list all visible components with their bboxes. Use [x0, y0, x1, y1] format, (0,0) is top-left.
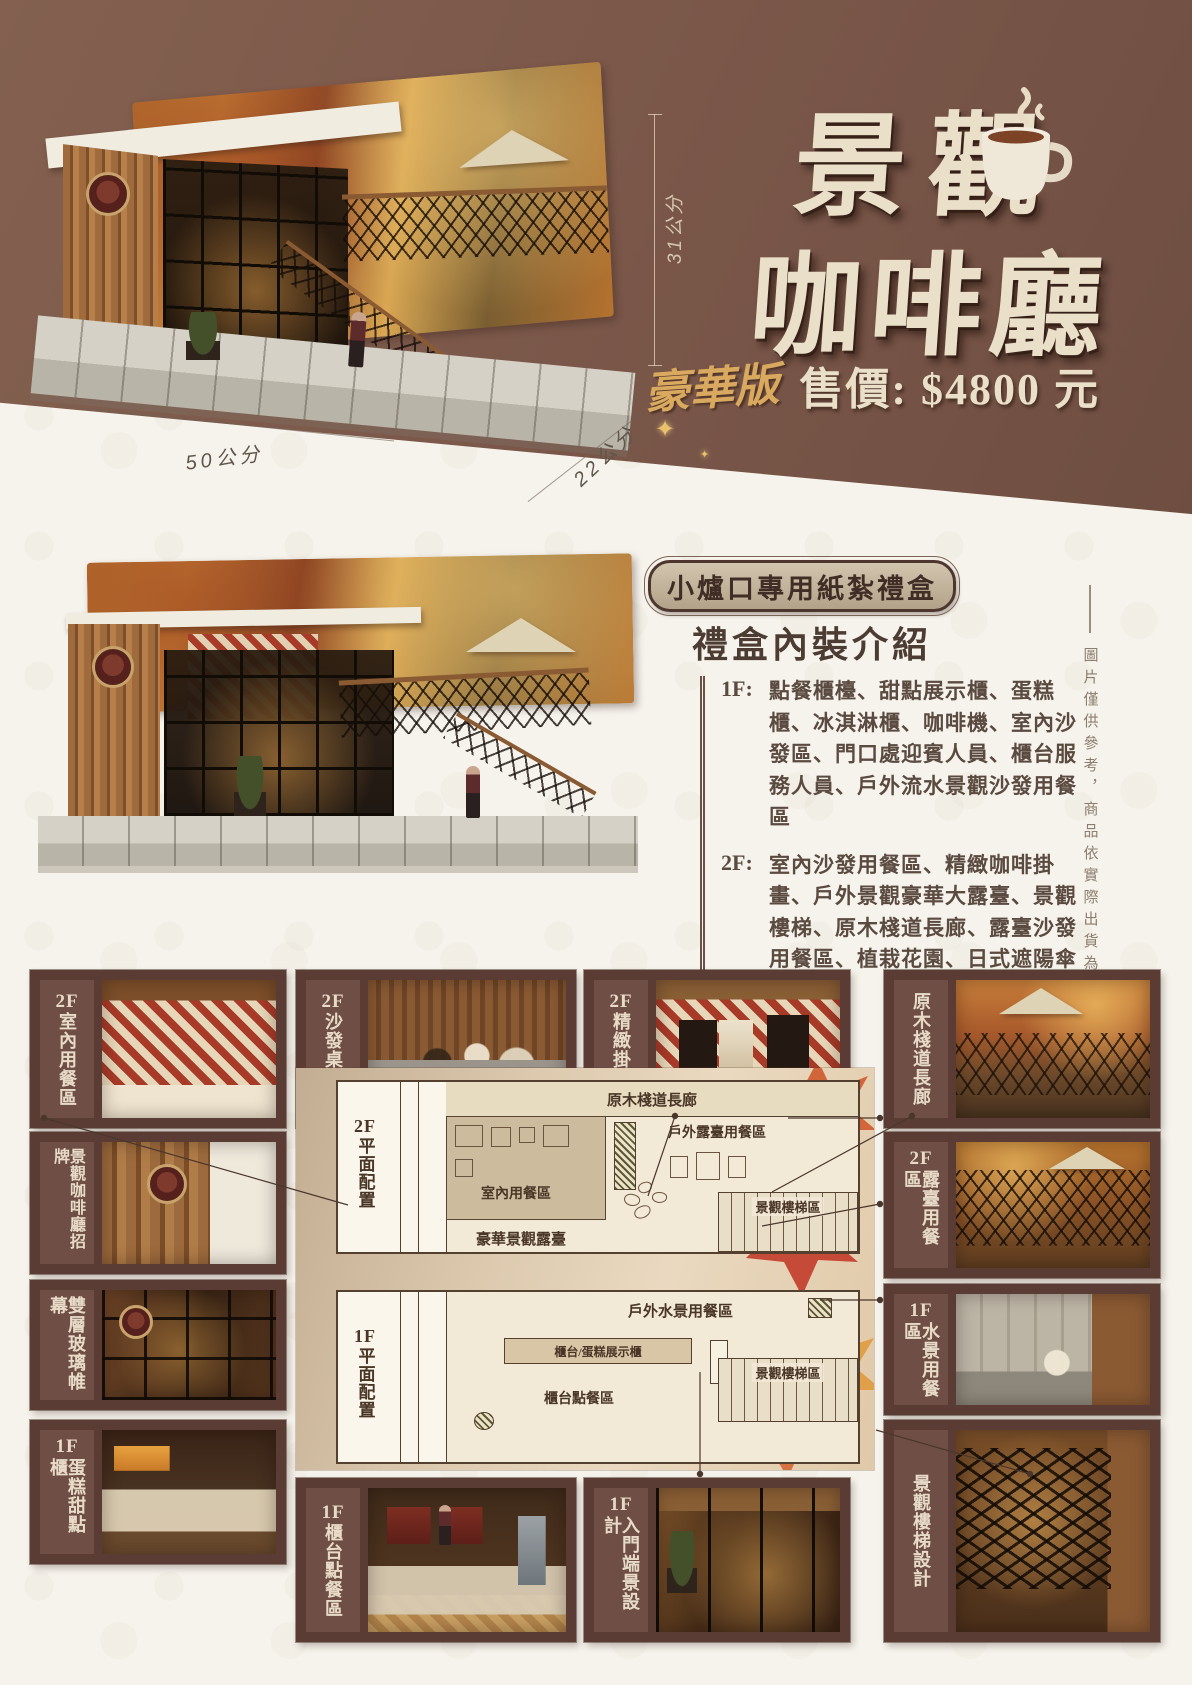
figurine-person: [466, 766, 480, 818]
giftbox-heading: 禮盒內裝介紹: [692, 616, 932, 668]
potted-plant: [234, 756, 266, 816]
floor-items: 點餐櫃檯、甜點展示櫃、蛋糕櫃、冰淇淋櫃、咖啡機、室內沙發區、門口處迎賓人員、櫃台…: [769, 676, 1093, 834]
umbrella: [466, 618, 576, 652]
potted-plant: [186, 312, 220, 360]
cafe-logo-sign: [92, 646, 134, 688]
giftbox-badge: 小爐口專用紙紮禮盒: [648, 560, 956, 612]
price-row: 豪華版 售價: $4800 元: [644, 352, 1100, 417]
coffee-cup-icon: [964, 84, 1074, 219]
poster-title-line2: 咖啡廳: [746, 252, 1114, 364]
edition-label: 豪華版: [642, 347, 781, 421]
sparkle-icon: ✦: [700, 448, 709, 461]
floor-label: 1F:: [721, 676, 769, 834]
divider-dash: [1089, 585, 1091, 633]
callout-lines: [0, 900, 1192, 1685]
balcony-railing: [342, 185, 609, 261]
width-dimension-label: 50公分: [184, 437, 265, 475]
poster-page: 31公分 50公分 22公分 景觀 咖啡廳 ✦ ✦ ✦ 豪華版 售價: $480…: [0, 0, 1192, 1685]
price-text: 售價: $4800 元: [799, 353, 1100, 417]
giftbox-model-photo: [38, 552, 638, 874]
cafe-logo-sign: [86, 172, 130, 216]
height-dimension-line: [654, 114, 655, 366]
floor-row-1f: 1F: 點餐櫃檯、甜點展示櫃、蛋糕櫃、冰淇淋櫃、咖啡機、室內沙發區、門口處迎賓人…: [721, 676, 1093, 834]
hero-model-photo: [38, 72, 638, 442]
height-dimension-label: 31公分: [660, 193, 687, 264]
stone-base: [38, 816, 638, 866]
